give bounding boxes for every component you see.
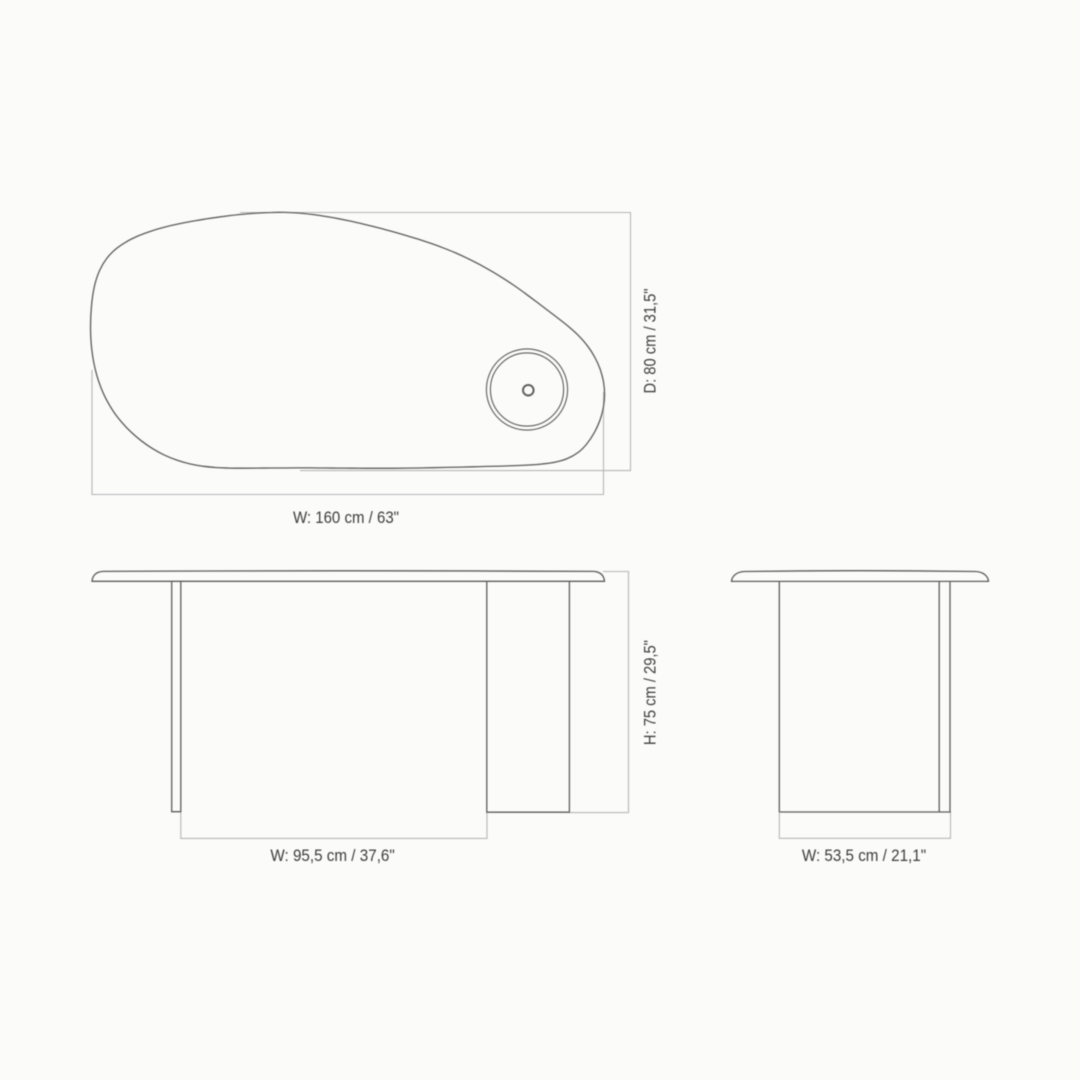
svg-text:W: 53,5 cm / 21,1": W: 53,5 cm / 21,1": [802, 847, 926, 865]
svg-text:W: 95,5 cm / 37,6": W: 95,5 cm / 37,6": [270, 847, 395, 865]
svg-text:H: 75 cm / 29,5": H: 75 cm / 29,5": [642, 640, 660, 745]
svg-text:W: 160 cm / 63": W: 160 cm / 63": [293, 509, 399, 527]
svg-text:D: 80 cm / 31,5": D: 80 cm / 31,5": [642, 288, 660, 393]
